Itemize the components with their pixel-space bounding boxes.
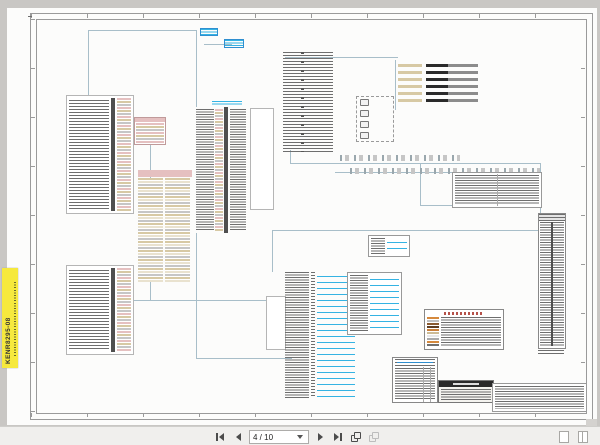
wire-table-header <box>138 170 192 177</box>
previous-page-button[interactable] <box>231 431 245 443</box>
next-view-icon <box>369 432 379 442</box>
previous-page-icon <box>236 433 241 441</box>
edge-tab-label: KENR8295-08 <box>5 317 12 364</box>
wire-table-col <box>165 178 190 282</box>
wire-code-strip <box>266 296 286 350</box>
warning-header <box>439 381 493 387</box>
terminal-rows <box>136 123 164 143</box>
wire-segment <box>196 30 197 107</box>
color-code-rows <box>441 317 501 347</box>
two-page-view-button[interactable] <box>576 431 590 443</box>
connector-symbols <box>311 272 315 398</box>
highlighted-wires <box>387 238 407 254</box>
legend-link-line <box>397 362 433 363</box>
terminal-block <box>134 117 166 145</box>
first-page-button[interactable] <box>213 431 227 443</box>
single-page-view-icon <box>559 431 569 443</box>
document-edge-tab: KENR8295-08 <box>2 268 18 368</box>
wire-table-columns <box>138 170 192 282</box>
wire-segment <box>395 60 396 110</box>
legend-table-divider <box>430 367 431 402</box>
wire-segment <box>88 30 196 31</box>
component-tag <box>200 28 218 36</box>
pin-labels <box>69 270 109 350</box>
connector-body <box>224 107 228 233</box>
harness-fanout <box>285 272 355 398</box>
schematic-notes-block <box>492 383 587 412</box>
connector-pin-list <box>538 213 566 349</box>
notes-text <box>495 386 584 409</box>
relay-symbol <box>360 99 369 106</box>
wire-code-column <box>215 109 223 231</box>
wire-segment <box>272 230 273 272</box>
wire-segment <box>272 230 540 231</box>
pin-labels <box>230 109 246 231</box>
last-page-icon <box>340 433 342 441</box>
relay-symbol <box>360 110 369 117</box>
document-page <box>7 8 597 425</box>
first-page-icon-arrow <box>219 433 224 441</box>
zone-number-mark <box>28 16 32 19</box>
legend-table-rows <box>395 368 435 400</box>
warning-box <box>438 380 494 403</box>
page-number-box <box>249 430 309 444</box>
pin-list-caption <box>538 350 564 354</box>
frame-ticks-right <box>581 19 585 412</box>
view-mode-controls <box>557 431 590 443</box>
wire-bundle-row <box>398 85 478 88</box>
relay-symbol <box>360 132 369 139</box>
wire-labels <box>350 275 368 332</box>
wire-code-strip <box>250 108 274 210</box>
frame-ticks-bottom <box>31 413 590 417</box>
component-tag <box>224 39 244 48</box>
wire-labels <box>285 272 309 398</box>
pin-labels <box>196 109 214 231</box>
page-nav-controls <box>213 430 381 444</box>
wire-bundle-row <box>398 99 478 102</box>
wire-labels <box>371 238 385 254</box>
edge-tab-subtext <box>14 282 16 356</box>
single-page-view-button[interactable] <box>557 431 571 443</box>
wire-table-col <box>138 178 163 282</box>
last-page-button[interactable] <box>331 431 345 443</box>
wire-code-column <box>117 98 131 211</box>
wire-color-code-table <box>424 309 504 350</box>
pin-labels <box>69 100 109 209</box>
color-code-chips <box>427 317 439 348</box>
wire-segment <box>88 30 89 95</box>
legend-table <box>392 357 438 403</box>
first-page-icon <box>216 433 218 441</box>
warning-icon <box>453 383 479 385</box>
next-page-icon <box>318 433 323 441</box>
harness-group-box <box>347 272 402 335</box>
wire-code-column <box>117 268 131 352</box>
previous-view-icon <box>351 432 361 442</box>
wire-bundle-row <box>398 78 478 81</box>
terminal-block-header <box>135 118 165 122</box>
frame-ticks-top <box>31 14 590 18</box>
last-page-icon-arrow <box>334 433 339 441</box>
connector-body <box>111 98 115 211</box>
group-box-divider <box>497 174 498 206</box>
component-symbols <box>301 52 304 152</box>
two-page-view-icon <box>578 431 588 443</box>
pdf-viewer-window: KENR8295-08 <box>0 0 600 445</box>
viewer-canvas: KENR8295-08 <box>0 0 600 427</box>
page-number-input[interactable] <box>250 433 297 442</box>
wire-segment <box>290 163 540 164</box>
wire-segment <box>132 300 266 301</box>
highlighted-wires <box>370 275 399 332</box>
warning-text <box>441 389 491 400</box>
frame-ticks-left <box>31 19 35 412</box>
connector-pinout-block <box>66 95 134 214</box>
inline-connector-chain <box>340 155 460 161</box>
pin-list-header <box>539 214 565 221</box>
connector-body <box>111 268 115 352</box>
previous-view-button[interactable] <box>349 431 363 443</box>
connector-body <box>551 222 553 346</box>
relay-symbol <box>360 121 369 128</box>
wire-segment <box>196 358 292 359</box>
component-group-box <box>452 172 542 208</box>
component-stack <box>283 52 333 152</box>
next-page-button[interactable] <box>313 431 327 443</box>
page-navigation-toolbar <box>0 426 600 445</box>
color-code-title <box>444 312 484 315</box>
ecm-connector-block <box>196 107 246 233</box>
legend-table-divider <box>423 367 424 402</box>
wire-bundle-row <box>398 92 478 95</box>
wire-bundle-row <box>398 71 478 74</box>
wire-segment <box>196 233 197 358</box>
page-dropdown-caret[interactable] <box>297 435 303 439</box>
ecm-title-label <box>212 101 242 105</box>
next-view-button[interactable] <box>367 431 381 443</box>
harness-group-box <box>368 235 410 257</box>
connector-pinout-block <box>66 265 134 355</box>
relay-group-box <box>356 96 394 142</box>
legend-table-header <box>395 359 435 367</box>
wire-bundle-row <box>398 64 478 67</box>
